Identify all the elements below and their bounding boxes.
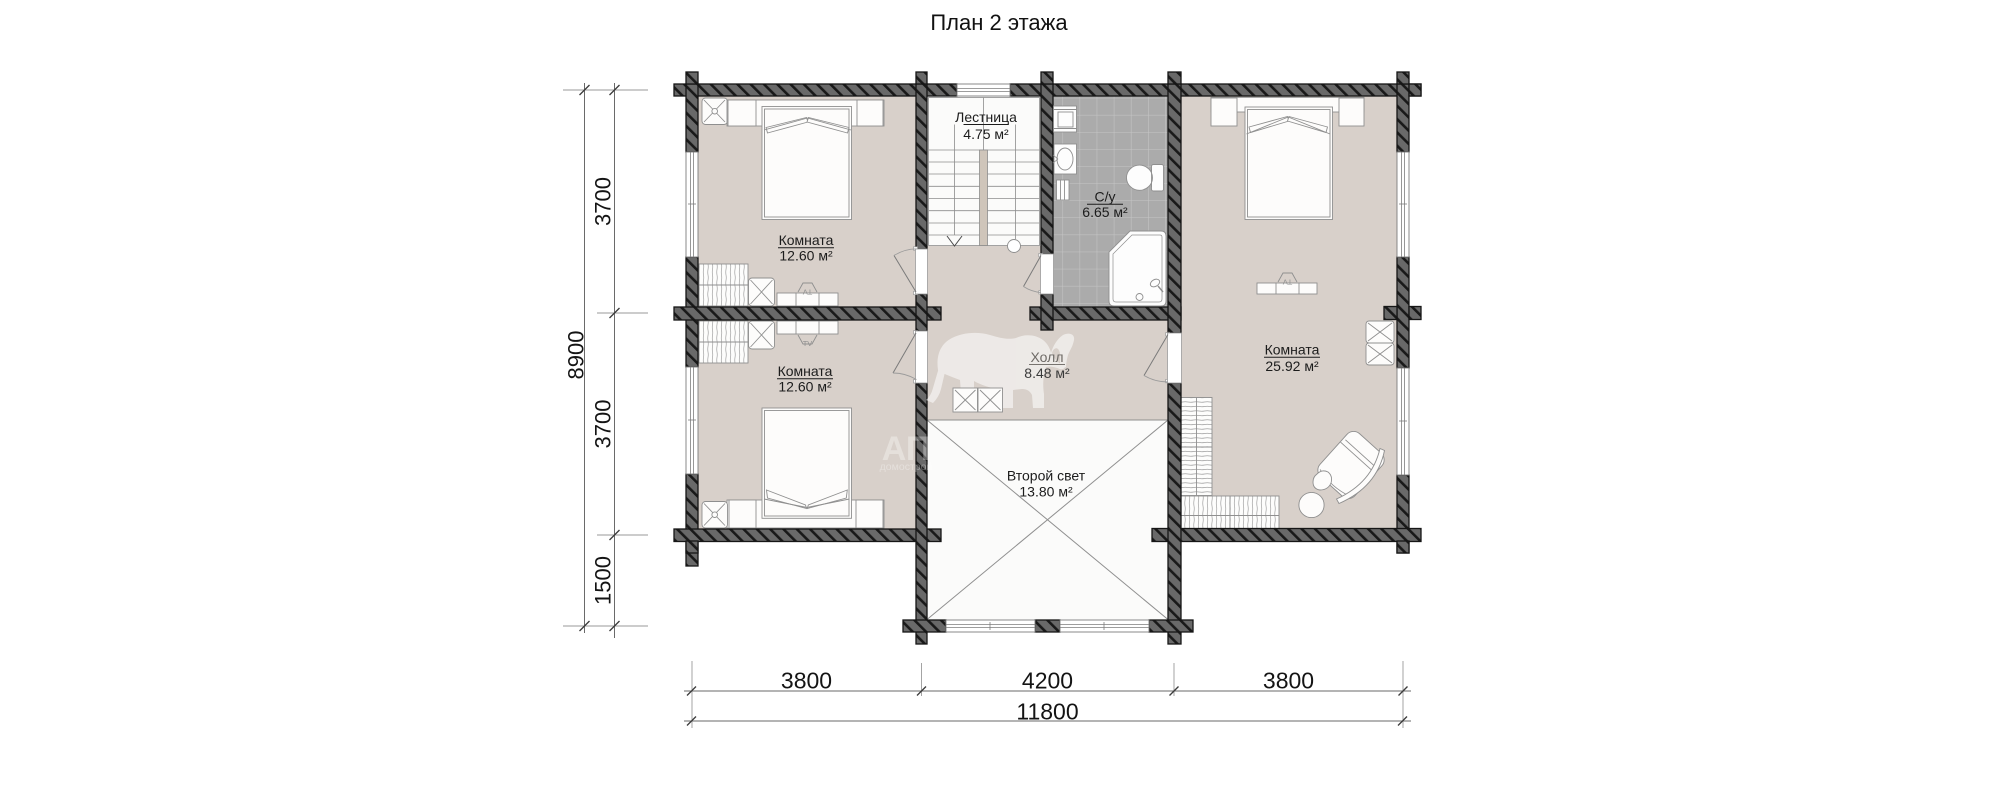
svg-text:TV: TV — [803, 339, 813, 348]
svg-text:8900: 8900 — [564, 331, 589, 380]
svg-text:Комната: Комната — [1265, 342, 1320, 358]
svg-text:3800: 3800 — [781, 668, 832, 694]
svg-text:С/у: С/у — [1095, 189, 1116, 205]
svg-text:4200: 4200 — [1022, 668, 1073, 694]
svg-text:Второй свет: Второй свет — [1007, 468, 1086, 484]
svg-text:домострой: домострой — [880, 461, 933, 473]
svg-text:4.75 м²: 4.75 м² — [963, 126, 1009, 142]
svg-text:12.60 м²: 12.60 м² — [778, 379, 832, 395]
svg-text:25.92 м²: 25.92 м² — [1265, 358, 1319, 374]
svg-text:8.48 м²: 8.48 м² — [1024, 365, 1070, 381]
svg-text:1500: 1500 — [591, 556, 616, 605]
svg-text:3800: 3800 — [1263, 668, 1314, 694]
svg-text:12.60 м²: 12.60 м² — [779, 248, 833, 264]
svg-text:3700: 3700 — [591, 400, 616, 449]
svg-text:TV: TV — [1283, 278, 1293, 287]
svg-text:11800: 11800 — [1016, 699, 1078, 725]
svg-text:Комната: Комната — [779, 232, 834, 248]
svg-text:Холл: Холл — [1031, 349, 1064, 365]
svg-text:TV: TV — [803, 288, 813, 297]
svg-text:Лестница: Лестница — [955, 109, 1017, 125]
svg-text:3700: 3700 — [591, 177, 616, 226]
svg-text:Комната: Комната — [778, 363, 833, 379]
svg-text:6.65 м²: 6.65 м² — [1082, 204, 1128, 220]
svg-text:План 2 этажа: План 2 этажа — [930, 10, 1068, 35]
svg-text:13.80 м²: 13.80 м² — [1019, 484, 1073, 500]
